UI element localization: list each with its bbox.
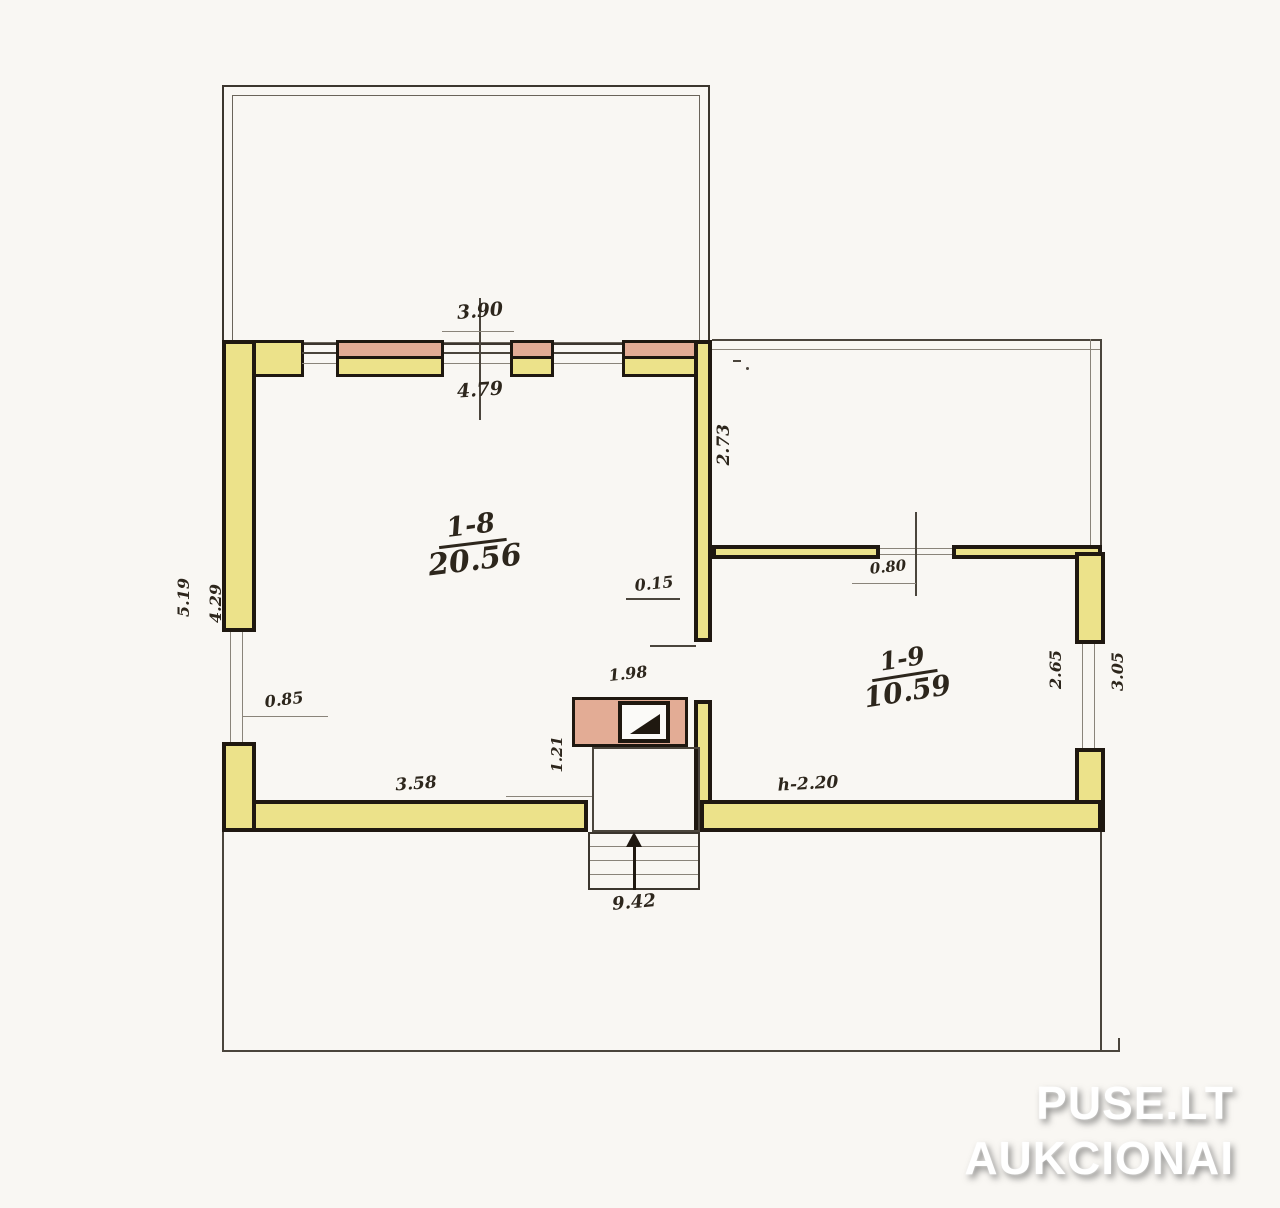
top-window-1-glazing: [302, 352, 338, 354]
right-window-line1: [1082, 644, 1083, 748]
room9-top-wall-left: [712, 545, 880, 559]
top-window-3-glazing: [554, 352, 622, 354]
right-window-line2: [1094, 644, 1095, 748]
entrance-arrow-shaft: [633, 844, 636, 890]
partition-upper: [694, 340, 712, 642]
dim-top-underline: [442, 331, 514, 332]
small-mark-dash: [733, 360, 741, 362]
top-window-3-glazing2: [554, 363, 622, 364]
watermark-line1: PUSE.LT: [964, 1076, 1234, 1131]
open-area-right-line-inner: [1090, 339, 1091, 552]
dim-stove-width: 1.98: [597, 661, 659, 686]
bottom-wall-right: [700, 800, 1102, 832]
dim-right-wall-inner: 2.65: [1046, 650, 1065, 689]
stair-step-1: [590, 846, 698, 847]
hall-dimension-line: [506, 796, 592, 797]
stove-flue: [618, 701, 670, 743]
dim-left-window: 0.85: [257, 687, 311, 712]
dim-partition-thickness: 0.15: [627, 571, 681, 595]
right-wall-upper: [1075, 552, 1105, 644]
stair-step-3: [590, 874, 698, 875]
dim-left-window-underline: [242, 716, 328, 717]
top-window-2-glazing2: [444, 363, 510, 364]
ground-line-right: [1100, 832, 1102, 1050]
dim-ceiling-height: h-2.20: [760, 772, 857, 797]
top-window-2-glazing: [444, 352, 510, 354]
small-mark-dot: [746, 367, 749, 370]
room-1-8-label: 1-8 20.56: [405, 504, 542, 584]
ground-line-left: [222, 832, 224, 1050]
stair-step-2: [590, 860, 698, 861]
floor-plan-scan: 3.90 4.79 2.73 0.15 0.80 2.65 3.05 3.58 …: [0, 0, 1280, 1208]
door-lintel-line: [650, 645, 696, 647]
dim-opening-underline: [852, 583, 916, 584]
open-area-right-line-outer: [1100, 339, 1102, 552]
dim-hall-width: 1.21: [548, 736, 566, 773]
entrance-arrow-head: [626, 832, 642, 847]
open-area-top-line: [712, 339, 1102, 341]
watermark: PUSE.LT AUKCIONAI: [964, 1076, 1234, 1186]
dim-right-area-depth: 2.73: [714, 424, 734, 465]
dim-opening-width: 0.80: [861, 555, 915, 578]
left-window-line1: [230, 632, 231, 742]
dim-top-wall-inner: 4.79: [437, 376, 522, 404]
top-wall-window-block-2: [510, 340, 554, 377]
room-1-8-area: 20.56: [409, 537, 542, 584]
open-area-top-line2: [712, 349, 1102, 350]
hall-landing: [592, 747, 700, 832]
top-wall-window-block-1: [336, 340, 444, 377]
dim-bottom-left-wall: 3.58: [385, 772, 446, 796]
room-1-9-area: 10.59: [846, 668, 969, 716]
dim-total-width: 9.42: [601, 889, 667, 915]
stairs-box: [588, 832, 700, 890]
left-window-line2: [242, 632, 243, 742]
dim-left-inner: 4.29: [206, 584, 225, 623]
room-1-9-label: 1-9 10.59: [841, 637, 969, 716]
watermark-line2: AUKCIONAI: [964, 1131, 1234, 1186]
dim-partition-underline: [626, 598, 680, 600]
dim-right-wall-outer: 3.05: [1108, 652, 1127, 691]
ground-line-bottom: [222, 1050, 1120, 1052]
ground-line-tick: [1118, 1038, 1120, 1050]
left-wall-upper: [222, 340, 256, 632]
left-wall-lower: [222, 742, 256, 832]
dim-left-outer: 5.19: [174, 578, 193, 617]
top-window-1-glazing2: [302, 363, 338, 364]
bottom-wall-left: [222, 800, 588, 832]
